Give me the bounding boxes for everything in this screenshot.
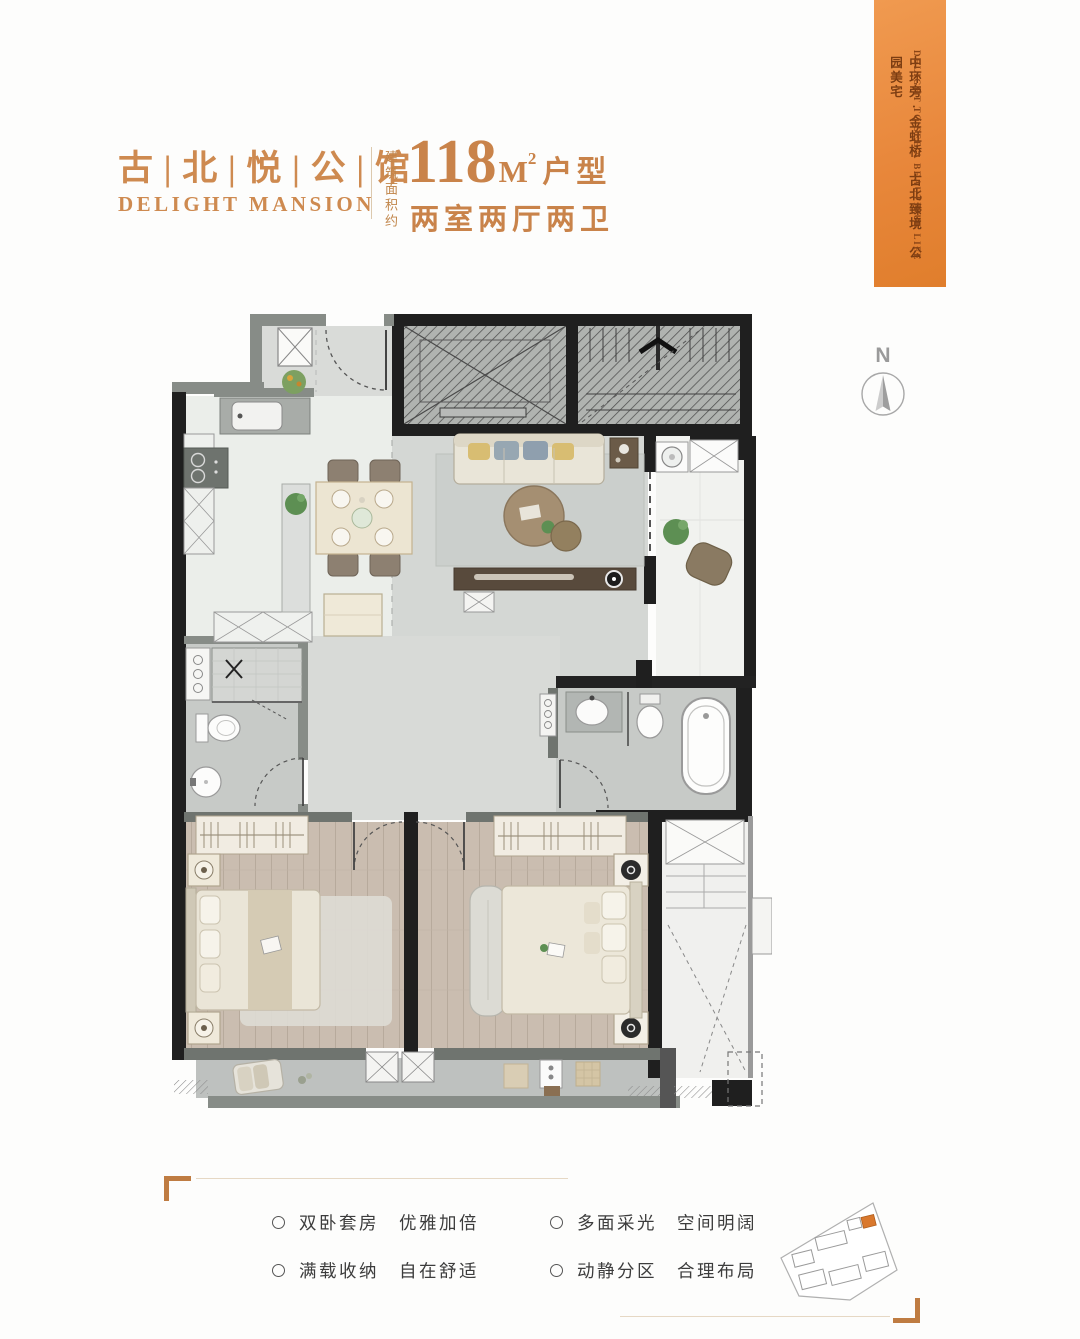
area-number: 118 xyxy=(407,131,497,193)
layout-description: 两室两厅两卫 xyxy=(410,196,614,238)
compass-north-label: N xyxy=(856,344,910,368)
sink-icon xyxy=(190,767,221,797)
bullet-ring-icon xyxy=(550,1216,563,1229)
elevator-shaft xyxy=(404,326,566,424)
project-title-en: DELIGHT MANSION xyxy=(118,192,375,217)
sofa xyxy=(454,434,604,484)
feature-text: 动静分区 合理布局 xyxy=(577,1258,757,1283)
header-divider xyxy=(371,147,372,219)
entry-plant-icon xyxy=(282,370,306,394)
corner-bracket-icon xyxy=(164,1176,191,1201)
master-toilet-icon xyxy=(637,694,663,738)
compass: N xyxy=(856,344,910,416)
stairwell xyxy=(578,326,740,424)
site-plan-thumbnail xyxy=(768,1188,908,1310)
feature-text: 满载收纳 自在舒适 xyxy=(299,1258,479,1283)
washer-icon xyxy=(656,442,688,472)
feature-item: 满载收纳 自在舒适 xyxy=(272,1258,479,1283)
side-table xyxy=(610,438,638,468)
area-note-vertical: 建筑面积约 xyxy=(381,150,400,236)
feature-text: 多面采光 空间明阔 xyxy=(577,1210,757,1235)
bathtub-icon xyxy=(682,698,730,794)
banner-text-en: DELIGHT TO SEE A BEAUTIFUL LIFE xyxy=(912,50,922,270)
flex-plant-icon xyxy=(663,519,689,545)
feature-item: 动静分区 合理布局 xyxy=(550,1258,757,1283)
chaise xyxy=(470,886,506,1016)
stove-icon xyxy=(184,448,228,488)
feature-text: 双卧套房 优雅加倍 xyxy=(299,1210,479,1235)
bullet-ring-icon xyxy=(550,1264,563,1277)
bed xyxy=(186,888,320,1012)
nightstand xyxy=(188,1012,220,1044)
project-title-cn: 古 | 北 | 悦 | 公 | 馆 xyxy=(118,140,411,191)
decorative-line xyxy=(620,1316,890,1317)
toilet-icon xyxy=(196,714,240,742)
tv-console xyxy=(454,568,636,590)
bullet-ring-icon xyxy=(272,1264,285,1277)
living-room xyxy=(436,434,644,612)
feature-item: 多面采光 空间明阔 xyxy=(550,1210,757,1235)
bed xyxy=(502,882,642,1018)
kitchen-plant-icon xyxy=(285,493,307,515)
area-unit: M xyxy=(499,154,528,190)
nightstand xyxy=(188,854,220,886)
area-exponent: 2 xyxy=(528,149,537,169)
vertical-banner: 中环旁·金虹桥 古北臻境 公园美宅 DELIGHT TO SEE A BEAUT… xyxy=(874,0,946,287)
nightstand xyxy=(614,854,648,886)
lounge-chair xyxy=(232,1059,284,1095)
floor-plan xyxy=(160,300,772,1120)
compass-needle-icon xyxy=(860,370,906,416)
area-line: 118 M 2 户型 xyxy=(407,131,610,193)
decorative-line xyxy=(196,1178,568,1179)
area-type-suffix: 户型 xyxy=(542,147,610,191)
feature-item: 双卧套房 优雅加倍 xyxy=(272,1210,479,1235)
bullet-ring-icon xyxy=(272,1216,285,1229)
corner-bracket-icon xyxy=(893,1298,920,1323)
poster-page: 古 | 北 | 悦 | 公 | 馆 DELIGHT MANSION 建筑面积约 … xyxy=(0,0,1080,1339)
